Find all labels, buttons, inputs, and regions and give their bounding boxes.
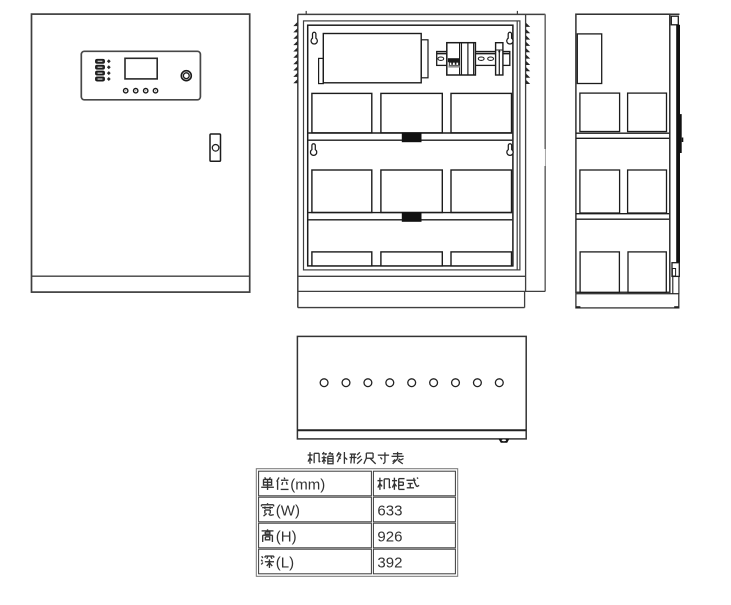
svg-text:(H): (H) (276, 528, 297, 545)
svg-text:633: 633 (377, 502, 402, 519)
svg-text:(mm): (mm) (290, 476, 325, 493)
svg-text:(W): (W) (276, 502, 300, 519)
svg-text:926: 926 (377, 528, 402, 545)
svg-text:(L): (L) (276, 554, 294, 571)
svg-text:392: 392 (377, 554, 402, 571)
